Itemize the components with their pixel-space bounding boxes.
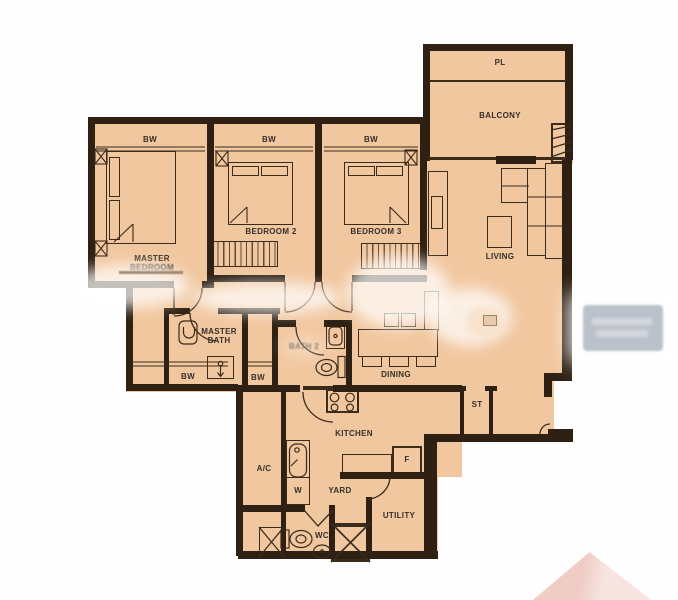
pillow bbox=[376, 166, 403, 176]
balcony-sliding-door bbox=[496, 156, 536, 164]
master-bath-vanity bbox=[207, 356, 234, 379]
watermark-smudge bbox=[280, 338, 328, 356]
label-living: LIVING bbox=[476, 252, 524, 261]
sofa-chaise bbox=[501, 168, 529, 203]
pillow bbox=[232, 166, 259, 176]
pillow bbox=[261, 166, 288, 176]
kitchen-counter bbox=[342, 454, 392, 473]
label-planter: PL bbox=[480, 58, 520, 67]
wall-store-left bbox=[460, 390, 464, 435]
label-store: ST bbox=[464, 400, 490, 409]
pillow bbox=[348, 166, 375, 176]
label-dining: DINING bbox=[370, 370, 422, 379]
wall-entry-jog-v bbox=[544, 373, 552, 397]
sofa-seat bbox=[527, 168, 546, 256]
label-kitchen: KITCHEN bbox=[326, 429, 382, 438]
wall-bath2-top bbox=[272, 320, 296, 327]
dining-chair bbox=[389, 356, 409, 367]
wall-wc-right bbox=[329, 505, 335, 552]
dining-chair bbox=[416, 356, 436, 367]
label-bw-masterbath: BW bbox=[171, 372, 205, 381]
wall-master-br2 bbox=[207, 117, 214, 282]
watermark-gray-box bbox=[583, 305, 663, 351]
label-balcony: BALCONY bbox=[466, 111, 534, 120]
label-wc: WC bbox=[306, 531, 338, 540]
label-bedroom3: BEDROOM 3 bbox=[342, 227, 410, 236]
wall-balcony-top bbox=[423, 44, 573, 51]
wall-kitchen-yard bbox=[340, 472, 432, 479]
wall-ac-left bbox=[236, 386, 243, 556]
bath2-shower bbox=[326, 324, 345, 349]
coffee-table bbox=[487, 216, 512, 248]
dining-chair bbox=[362, 356, 382, 367]
watermark-strike-mark bbox=[119, 271, 183, 274]
wall-store-cap bbox=[485, 386, 497, 391]
wall-bedrooms-top bbox=[88, 117, 428, 124]
wall-yard-utility bbox=[366, 497, 372, 552]
bedroom2-wardrobe bbox=[212, 241, 278, 267]
floorplan-canvas: PL BALCONY LIVING DINING KITCHEN YARD UT… bbox=[0, 0, 678, 600]
planter-divider-line bbox=[429, 80, 566, 82]
label-fridge: F bbox=[392, 455, 422, 464]
wall-store-right bbox=[489, 390, 493, 435]
wall-store-cap bbox=[454, 386, 466, 391]
wall-master-left bbox=[88, 117, 95, 288]
wall-br3-living bbox=[420, 117, 427, 270]
tv bbox=[431, 196, 443, 229]
wall-bath2-right bbox=[346, 320, 352, 392]
wall-balcony-right bbox=[565, 44, 573, 160]
wall-outer-right-lower bbox=[424, 437, 437, 555]
label-washer: W bbox=[286, 486, 310, 495]
watermark-pink-triangle bbox=[533, 552, 651, 600]
label-master-bath: MASTER BATH bbox=[196, 327, 242, 345]
label-bw-bedroom3: BW bbox=[354, 135, 388, 144]
wall-dining-bottom bbox=[424, 434, 550, 442]
label-bw-shaft: BW bbox=[241, 373, 275, 382]
wall-wc-top bbox=[242, 505, 305, 512]
wall-br2-br3 bbox=[315, 117, 322, 282]
watermark-artifact-square bbox=[483, 315, 497, 326]
dining-table bbox=[358, 329, 438, 357]
wall-kitchen-top bbox=[333, 385, 462, 392]
label-bw-master: BW bbox=[133, 135, 167, 144]
cooker-hob bbox=[326, 389, 359, 413]
label-bedroom2: BEDROOM 2 bbox=[237, 227, 305, 236]
sofa-back bbox=[545, 163, 563, 259]
label-bw-bedroom2: BW bbox=[252, 135, 286, 144]
wall-bottom bbox=[238, 551, 438, 559]
wall-entry-step bbox=[548, 429, 573, 442]
wall-kitchen-top bbox=[236, 385, 300, 392]
pillow bbox=[109, 200, 120, 240]
label-yard: YARD bbox=[318, 486, 362, 495]
watermark-gray-text-line bbox=[592, 318, 652, 325]
wall-masterbath-left bbox=[164, 310, 169, 386]
kitchen-sink bbox=[286, 440, 310, 481]
label-master-bath-line2: BATH bbox=[196, 336, 242, 345]
pillow bbox=[109, 157, 120, 197]
wall-br2-bottom bbox=[213, 275, 285, 282]
wall-bw-bottom bbox=[126, 384, 238, 391]
label-master-bath-line1: MASTER bbox=[196, 327, 242, 336]
label-utility: UTILITY bbox=[372, 511, 426, 520]
label-ac-ledge: A/C bbox=[246, 464, 282, 473]
label-master-bedroom-line1: MASTER bbox=[120, 254, 184, 263]
watermark-gray-text-line bbox=[596, 330, 648, 337]
watermark-smudge bbox=[192, 282, 342, 314]
